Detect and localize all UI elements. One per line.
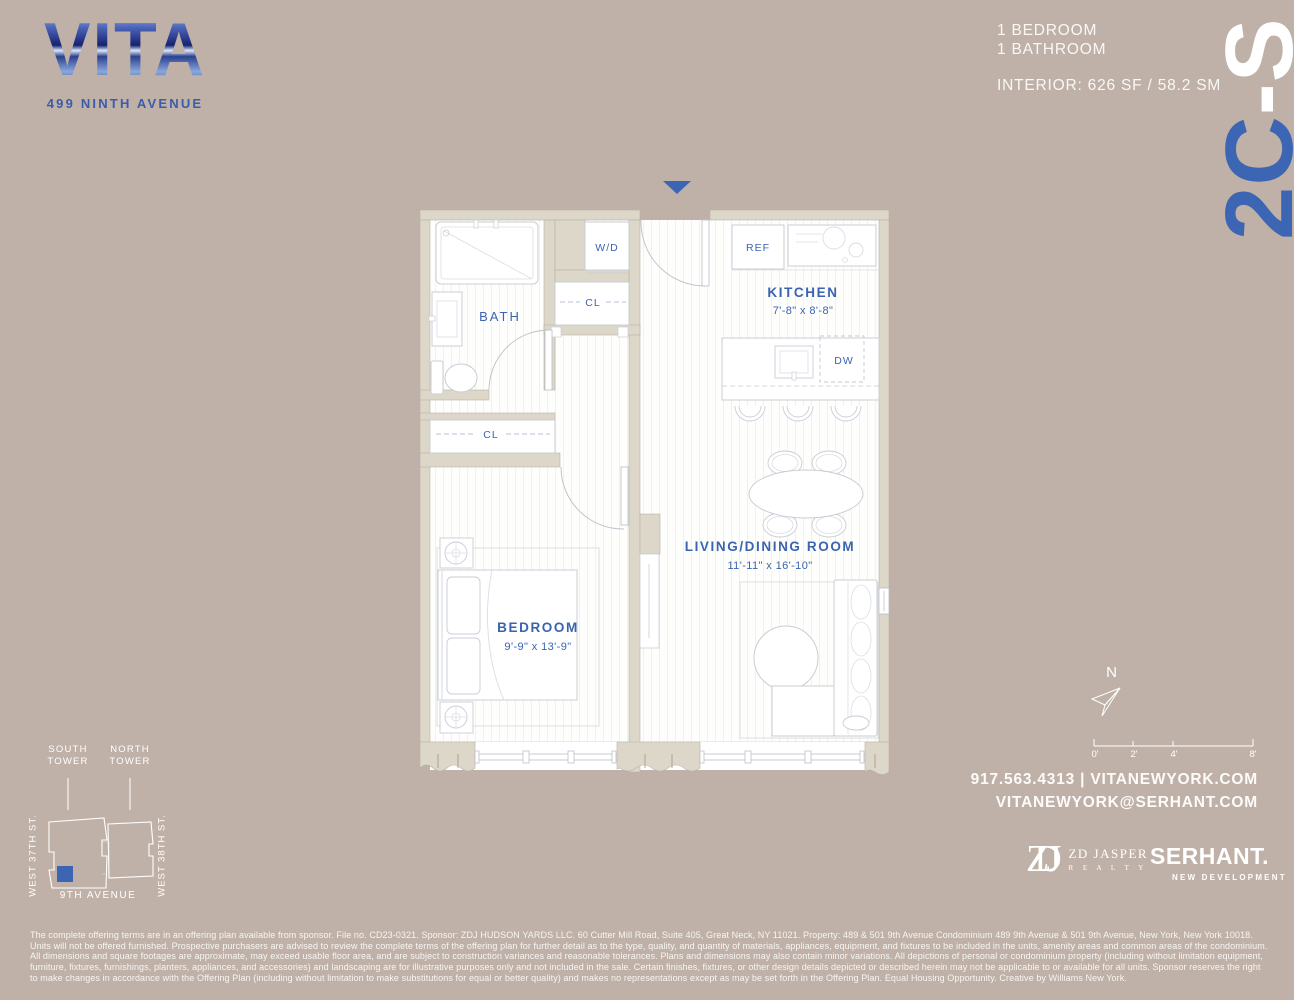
bath-label: BATH (479, 309, 521, 324)
wd-label: W/D (595, 242, 618, 254)
bath-sink (432, 292, 462, 346)
kitchen-island (722, 338, 879, 400)
site-map: SOUTH TOWER NORTH TOWER WEST 37TH ST. WE… (18, 744, 193, 909)
legal-disclaimer: The complete offering terms are in an of… (30, 930, 1268, 984)
dw-label: DW (834, 355, 854, 367)
serhant-name: SERHANT. (1150, 843, 1287, 870)
living-niche (640, 554, 659, 648)
north-label: N (1086, 664, 1138, 681)
unit-summary: 1 BEDROOM 1 BATHROOM INTERIOR: 626 SF / … (997, 21, 1221, 95)
unit-number-prefix: 2C (1206, 115, 1294, 240)
closet1-label: CL (585, 297, 600, 309)
stools (735, 406, 861, 421)
scale-bar: 0' 2' 4' 8' (1088, 736, 1260, 766)
bedroom-dims: 9'-9" x 13'-9" (504, 641, 571, 653)
scale-tick-8: 8' (1249, 749, 1256, 760)
north-arrow-icon (1086, 652, 1142, 718)
ref-label: REF (746, 242, 770, 254)
pillow (447, 638, 480, 694)
north-tower-outline (108, 822, 153, 878)
shower-tub (436, 222, 538, 284)
west-38th-label: WEST 38TH ST. (157, 811, 168, 901)
living-dims: 11'-11" x 16'-10" (727, 560, 812, 572)
9th-avenue-label: 9TH AVENUE (38, 890, 158, 901)
vita-logo: VITA (30, 14, 220, 84)
floor-plan: BATH W/D CL CL REF DW KITCHEN 7'-8" x 8'… (420, 180, 890, 780)
zdj-monogram: ZDJ (1026, 840, 1068, 878)
closet2-label: CL (483, 429, 498, 441)
toilet (431, 361, 443, 394)
serhant-logo: SERHANT. NEW DEVELOPMENT (1150, 843, 1287, 882)
zd-jasper-logo: ZDJ ZD JASPER R E A L T Y (1026, 840, 1148, 878)
bedroom-label: BEDROOM (497, 620, 579, 635)
kitchen-label: KITCHEN (767, 285, 838, 300)
unit-number: 2C-S (1212, 17, 1294, 240)
chaise (772, 686, 834, 736)
zdj-name: ZD JASPER (1068, 846, 1148, 862)
kitchen-dims: 7'-8" x 8'-8" (773, 305, 834, 317)
compass: N (1086, 652, 1142, 718)
dining-table (749, 470, 863, 518)
unit-location-marker (57, 866, 73, 882)
scale-tick-0: 0' (1091, 749, 1098, 760)
interior-area: INTERIOR: 626 SF / 58.2 SM (997, 76, 1221, 95)
coffee-table (754, 626, 818, 690)
email: VITANEWYORK@SERHANT.COM (971, 791, 1258, 814)
logo-address: 499 NINTH AVENUE (30, 96, 220, 111)
contact-block: 917.563.4313 | VITANEWYORK.COM VITANEWYO… (971, 768, 1258, 814)
entry-marker-icon (663, 181, 691, 194)
unit-number-suffix: -S (1206, 17, 1294, 115)
pillow (447, 577, 480, 634)
scale-tick-4: 4' (1170, 749, 1177, 760)
vita-logo-text: VITA (30, 11, 220, 87)
west-37th-label: WEST 37TH ST. (28, 811, 39, 901)
living-label: LIVING/DINING ROOM (685, 539, 856, 554)
bedroom-count: 1 BEDROOM (997, 21, 1221, 40)
phone-website: 917.563.4313 | VITANEWYORK.COM (971, 768, 1258, 791)
serhant-new-development-label: NEW DEVELOPMENT (1172, 873, 1287, 882)
zdj-realty-label: R E A L T Y (1068, 864, 1148, 872)
bathroom-count: 1 BATHROOM (997, 40, 1221, 59)
cooktop (788, 225, 876, 266)
floorplan-flyer: VITA 499 NINTH AVENUE 1 BEDROOM 1 BATHRO… (0, 0, 1294, 1000)
scale-tick-2: 2' (1130, 749, 1137, 760)
